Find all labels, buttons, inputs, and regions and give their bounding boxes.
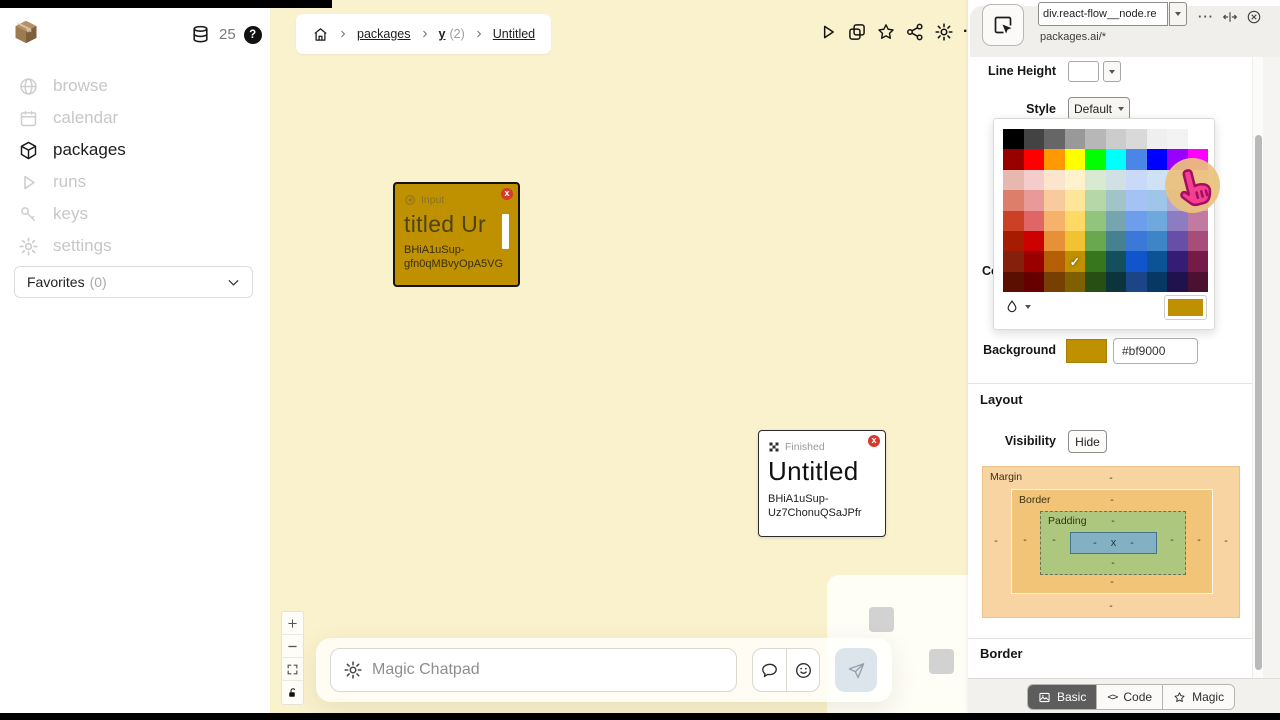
palette-cell[interactable] <box>1106 129 1127 149</box>
palette-cell[interactable]: ✓ <box>1065 251 1086 271</box>
favorites-dropdown[interactable]: Favorites (0) <box>14 266 253 298</box>
close-panel-icon[interactable] <box>1246 9 1262 25</box>
palette-cell[interactable] <box>1065 272 1086 292</box>
box-model-padding: Padding - - - - - x - <box>1040 511 1186 575</box>
chatpad-icon-group <box>752 648 820 692</box>
palette-cell[interactable] <box>1167 251 1188 271</box>
fit-view-button[interactable] <box>282 658 303 681</box>
chatpad-input[interactable] <box>372 661 724 679</box>
panel-menu-icon[interactable]: ··· <box>1198 12 1214 22</box>
palette-cell[interactable] <box>1024 211 1045 231</box>
palette-cell[interactable] <box>1147 211 1168 231</box>
palette-cell[interactable] <box>1044 190 1065 210</box>
favorites-count: (0) <box>90 274 107 290</box>
palette-cell[interactable] <box>1106 251 1127 271</box>
palette-cell[interactable] <box>1085 251 1106 271</box>
palette-cell[interactable] <box>1044 251 1065 271</box>
palette-cell[interactable] <box>1167 231 1188 251</box>
app-logo-package-icon[interactable] <box>12 18 40 46</box>
zoom-out-button[interactable] <box>282 635 303 658</box>
package-icon <box>18 140 39 161</box>
tab-label: Code <box>1123 690 1152 704</box>
sidebar-item-label: calendar <box>53 108 118 128</box>
palette-cell[interactable] <box>1003 149 1024 169</box>
breadcrumb-group[interactable]: y <box>439 27 446 41</box>
sidebar-item-label: runs <box>53 172 86 192</box>
palette-cell[interactable] <box>1167 129 1188 149</box>
border-heading: Border <box>980 646 1023 661</box>
selector-dropdown-button[interactable] <box>1169 2 1187 26</box>
margin-top-value[interactable]: - <box>1109 472 1113 484</box>
dock-resize-icon[interactable] <box>1222 9 1238 25</box>
palette-cell[interactable] <box>1147 272 1168 292</box>
current-color-well <box>1164 295 1207 320</box>
palette-cell[interactable] <box>1126 170 1147 190</box>
border-left-value[interactable]: - <box>1023 534 1027 546</box>
caret-down-icon <box>1175 12 1181 16</box>
scrollbar-thumb[interactable] <box>1255 135 1262 670</box>
palette-cell[interactable] <box>1126 129 1147 149</box>
breadcrumb-group-count: (2) <box>449 27 464 41</box>
palette-cell[interactable] <box>1106 170 1127 190</box>
hand-cursor-icon <box>1167 159 1224 216</box>
palette-cell[interactable] <box>1003 190 1024 210</box>
tab-label: Magic <box>1192 690 1224 704</box>
palette-cell[interactable] <box>1024 231 1045 251</box>
chat-history-button[interactable] <box>753 649 786 691</box>
palette-cell[interactable] <box>1085 231 1106 251</box>
palette-cell[interactable] <box>1085 211 1106 231</box>
style-value: Default <box>1074 102 1112 116</box>
picker-current-swatch <box>1168 299 1203 316</box>
palette-cell[interactable] <box>1147 190 1168 210</box>
sidebar-item-label: settings <box>53 236 112 256</box>
droplet-icon <box>1004 299 1020 315</box>
palette-cell[interactable] <box>1044 272 1065 292</box>
visibility-label: Visibility <box>968 434 1056 448</box>
palette-cell[interactable] <box>1126 211 1147 231</box>
palette-cell[interactable] <box>1167 272 1188 292</box>
palette-cell[interactable] <box>1024 129 1045 149</box>
palette-cell[interactable] <box>1106 211 1127 231</box>
background-swatch[interactable] <box>1066 339 1107 363</box>
palette-cell[interactable] <box>1024 251 1045 271</box>
sidebar: 25 ? browse calendar packages runs keys … <box>0 8 270 713</box>
magic-chatpad <box>316 638 892 702</box>
tab-magic[interactable]: Magic <box>1162 685 1234 709</box>
node-type-badge: Finished <box>785 441 825 453</box>
palette-cell[interactable] <box>1003 211 1024 231</box>
speech-bubble-icon <box>760 661 779 680</box>
palette-cell[interactable] <box>1147 149 1168 169</box>
content-width-value: - <box>1093 537 1097 549</box>
flow-node-finished[interactable]: Finished x Untitled BHiA1uSup- Uz7ChonuQ… <box>758 430 886 537</box>
palette-cell[interactable] <box>1106 272 1127 292</box>
input-badge-icon <box>404 194 416 206</box>
inspector-panel: div.react-flow__node.re packages.ai/* ··… <box>968 0 1280 713</box>
palette-cell[interactable] <box>1044 231 1065 251</box>
caret-down-icon <box>1118 107 1124 111</box>
key-icon <box>18 204 39 225</box>
caret-down-icon <box>1025 305 1031 309</box>
margin-bottom-value[interactable]: - <box>1109 600 1113 612</box>
element-picker-icon <box>991 13 1015 37</box>
palette-cell[interactable] <box>1126 231 1147 251</box>
palette-cell[interactable] <box>1188 251 1209 271</box>
section-divider <box>968 383 1252 384</box>
palette-cell[interactable] <box>1126 149 1147 169</box>
palette-cell[interactable] <box>1044 149 1065 169</box>
line-height-label: Line Height <box>968 64 1056 78</box>
node-type-badge: Input <box>421 194 444 206</box>
palette-cell[interactable] <box>1024 190 1045 210</box>
sidebar-item-browse[interactable]: browse <box>0 70 270 102</box>
gear-icon <box>18 236 39 257</box>
flow-canvas[interactable]: packages y (2) Untitled · Input x titled… <box>270 0 968 713</box>
border-label: Border <box>1019 494 1051 506</box>
palette-cell[interactable] <box>1188 272 1209 292</box>
tab-code[interactable]: <> Code <box>1096 685 1162 709</box>
node-title-editing[interactable]: titled Ur <box>404 211 509 238</box>
palette-cell[interactable] <box>1003 272 1024 292</box>
letterbox-top <box>0 0 332 8</box>
node-close-button[interactable]: x <box>868 435 880 447</box>
line-height-input[interactable] <box>1068 61 1099 82</box>
palette-cell[interactable] <box>1065 231 1086 251</box>
canvas-toolbar: · <box>818 22 968 42</box>
palette-cell[interactable] <box>1085 170 1106 190</box>
palette-cell[interactable] <box>1003 129 1024 149</box>
text-cursor-caret <box>502 214 509 249</box>
palette-cell[interactable] <box>1147 170 1168 190</box>
palette-cell[interactable] <box>1065 149 1086 169</box>
border-top-value[interactable]: - <box>1110 494 1114 506</box>
palette-cell[interactable] <box>1085 129 1106 149</box>
palette-cell[interactable] <box>1106 149 1127 169</box>
sidebar-item-label: browse <box>53 76 108 96</box>
palette-cell[interactable] <box>1147 129 1168 149</box>
palette-cell[interactable] <box>1044 129 1065 149</box>
selected-check-icon: ✓ <box>1065 251 1086 271</box>
custom-color-button[interactable] <box>1004 299 1031 315</box>
paper-plane-icon <box>847 661 866 680</box>
padding-left-value[interactable]: - <box>1052 534 1056 546</box>
credits-count: 25 <box>219 26 236 43</box>
palette-cell[interactable] <box>1106 190 1127 210</box>
section-divider <box>968 638 1252 639</box>
tab-basic[interactable]: Basic <box>1028 685 1096 709</box>
background-label: Background <box>968 343 1056 357</box>
lock-button[interactable] <box>282 681 303 704</box>
fit-view-icon <box>286 663 299 676</box>
caret-down-icon <box>1109 70 1115 74</box>
sidebar-item-label: packages <box>53 140 126 160</box>
palette-cell[interactable] <box>1085 190 1106 210</box>
element-picker-button[interactable] <box>982 4 1024 46</box>
palette-cell[interactable] <box>1188 231 1209 251</box>
panel-footer: Basic <> Code Magic <box>968 678 1280 713</box>
node-close-button[interactable]: x <box>501 188 513 200</box>
plus-icon <box>286 617 299 630</box>
padding-right-value[interactable]: - <box>1170 534 1174 546</box>
code-icon: <> <box>1107 692 1117 703</box>
finish-flag-icon <box>768 441 780 453</box>
line-height-dropdown[interactable] <box>1103 61 1121 82</box>
image-icon <box>1038 691 1051 704</box>
star-icon <box>1173 691 1186 704</box>
breadcrumb: packages y (2) Untitled <box>296 14 551 54</box>
sidebar-item-runs[interactable]: runs <box>0 166 270 198</box>
gear-icon <box>343 660 363 680</box>
minus-icon <box>286 640 299 653</box>
selector-scope: packages.ai/* <box>1040 31 1106 43</box>
smiley-icon <box>794 661 813 680</box>
border-bottom-value[interactable]: - <box>1110 576 1114 588</box>
duplicate-icon[interactable] <box>847 22 867 42</box>
padding-top-value[interactable]: - <box>1111 515 1115 527</box>
style-label: Style <box>968 102 1056 116</box>
mode-tabs: Basic <> Code Magic <box>1027 684 1235 710</box>
background-hex-input[interactable] <box>1113 338 1198 364</box>
palette-cell[interactable] <box>1003 231 1024 251</box>
workflow-icon[interactable] <box>905 22 925 42</box>
home-icon[interactable] <box>312 26 329 43</box>
palette-cell[interactable] <box>1024 272 1045 292</box>
breadcrumb-current[interactable]: Untitled <box>493 27 535 41</box>
palette-cell[interactable] <box>1065 190 1086 210</box>
palette-cell[interactable] <box>1085 272 1106 292</box>
margin-label: Margin <box>990 471 1022 483</box>
sidebar-item-calendar[interactable]: calendar <box>0 102 270 134</box>
box-model-diagram: Margin - - - - Border - - - - Padding - … <box>982 466 1240 618</box>
palette-cell[interactable] <box>1147 251 1168 271</box>
favorites-label: Favorites <box>27 274 85 290</box>
palette-cell[interactable] <box>1065 211 1086 231</box>
send-button[interactable] <box>835 648 877 692</box>
node-id: BHiA1uSup- Uz7ChonuQSaJPfr <box>768 492 876 520</box>
node-title[interactable]: Untitled <box>768 456 876 487</box>
gear-icon[interactable] <box>934 22 954 42</box>
emoji-button[interactable] <box>786 649 819 691</box>
palette-cell[interactable] <box>1085 149 1106 169</box>
palette-cell[interactable] <box>1044 170 1065 190</box>
palette-cell[interactable] <box>1024 149 1045 169</box>
palette-cell[interactable] <box>1106 231 1127 251</box>
run-icon[interactable] <box>818 22 838 42</box>
palette-cell[interactable] <box>1188 129 1209 149</box>
sidebar-item-label: keys <box>53 204 88 224</box>
box-model-border: Border - - - - Padding - - - - - x - <box>1011 489 1213 594</box>
content-height-value: - <box>1130 537 1134 549</box>
panel-edge <box>1263 57 1280 678</box>
tab-label: Basic <box>1057 690 1086 704</box>
play-icon <box>18 172 39 193</box>
palette-cell[interactable] <box>1003 170 1024 190</box>
flow-node-input[interactable]: Input x titled Ur BHiA1uSup- gfn0qMBvyOp… <box>393 182 520 287</box>
minimap-node <box>869 607 894 632</box>
zoom-in-button[interactable] <box>282 612 303 635</box>
padding-bottom-value[interactable]: - <box>1111 557 1115 569</box>
color-picker-popup: ✓ <box>993 118 1215 330</box>
lock-icon <box>287 687 299 699</box>
palette-cell[interactable] <box>1065 129 1086 149</box>
zoom-controls <box>281 611 304 705</box>
padding-label: Padding <box>1048 515 1087 527</box>
palette-cell[interactable] <box>1126 272 1147 292</box>
sidebar-item-keys[interactable]: keys <box>0 198 270 230</box>
box-model-content[interactable]: - x - <box>1070 532 1157 554</box>
margin-left-value[interactable]: - <box>994 535 998 547</box>
palette-cell[interactable] <box>1065 170 1086 190</box>
chevron-down-icon <box>225 274 242 291</box>
breadcrumb-packages[interactable]: packages <box>357 27 411 41</box>
help-button[interactable]: ? <box>244 26 262 44</box>
database-icon <box>190 24 211 45</box>
sidebar-menu: browse calendar packages runs keys setti… <box>0 70 270 262</box>
panel-scrollbar <box>1252 57 1263 678</box>
palette-cell[interactable] <box>1147 231 1168 251</box>
content-x-label: x <box>1111 537 1117 549</box>
sidebar-item-packages[interactable]: packages <box>0 134 270 166</box>
selector-input[interactable]: div.react-flow__node.re <box>1038 2 1168 26</box>
sidebar-item-settings[interactable]: settings <box>0 230 270 262</box>
chatpad-input-wrap <box>330 648 737 692</box>
globe-icon <box>18 76 39 97</box>
palette-cell[interactable] <box>1003 251 1024 271</box>
minimap-node <box>929 649 954 674</box>
visibility-hide-button[interactable]: Hide <box>1068 430 1107 453</box>
palette-cell[interactable] <box>1044 211 1065 231</box>
palette-cell[interactable] <box>1188 211 1209 231</box>
chevron-right-icon <box>420 29 430 39</box>
chevron-right-icon <box>474 29 484 39</box>
border-right-value[interactable]: - <box>1197 534 1201 546</box>
palette-cell[interactable] <box>1024 170 1045 190</box>
star-icon[interactable] <box>876 22 896 42</box>
palette-cell[interactable] <box>1126 251 1147 271</box>
palette-cell[interactable] <box>1126 190 1147 210</box>
letterbox-bottom <box>0 713 1280 720</box>
node-id: BHiA1uSup- gfn0qMBvyOpA5VG <box>404 243 509 271</box>
margin-right-value[interactable]: - <box>1224 535 1228 547</box>
calendar-icon <box>18 108 39 129</box>
chevron-right-icon <box>338 29 348 39</box>
layout-heading: Layout <box>980 392 1023 407</box>
